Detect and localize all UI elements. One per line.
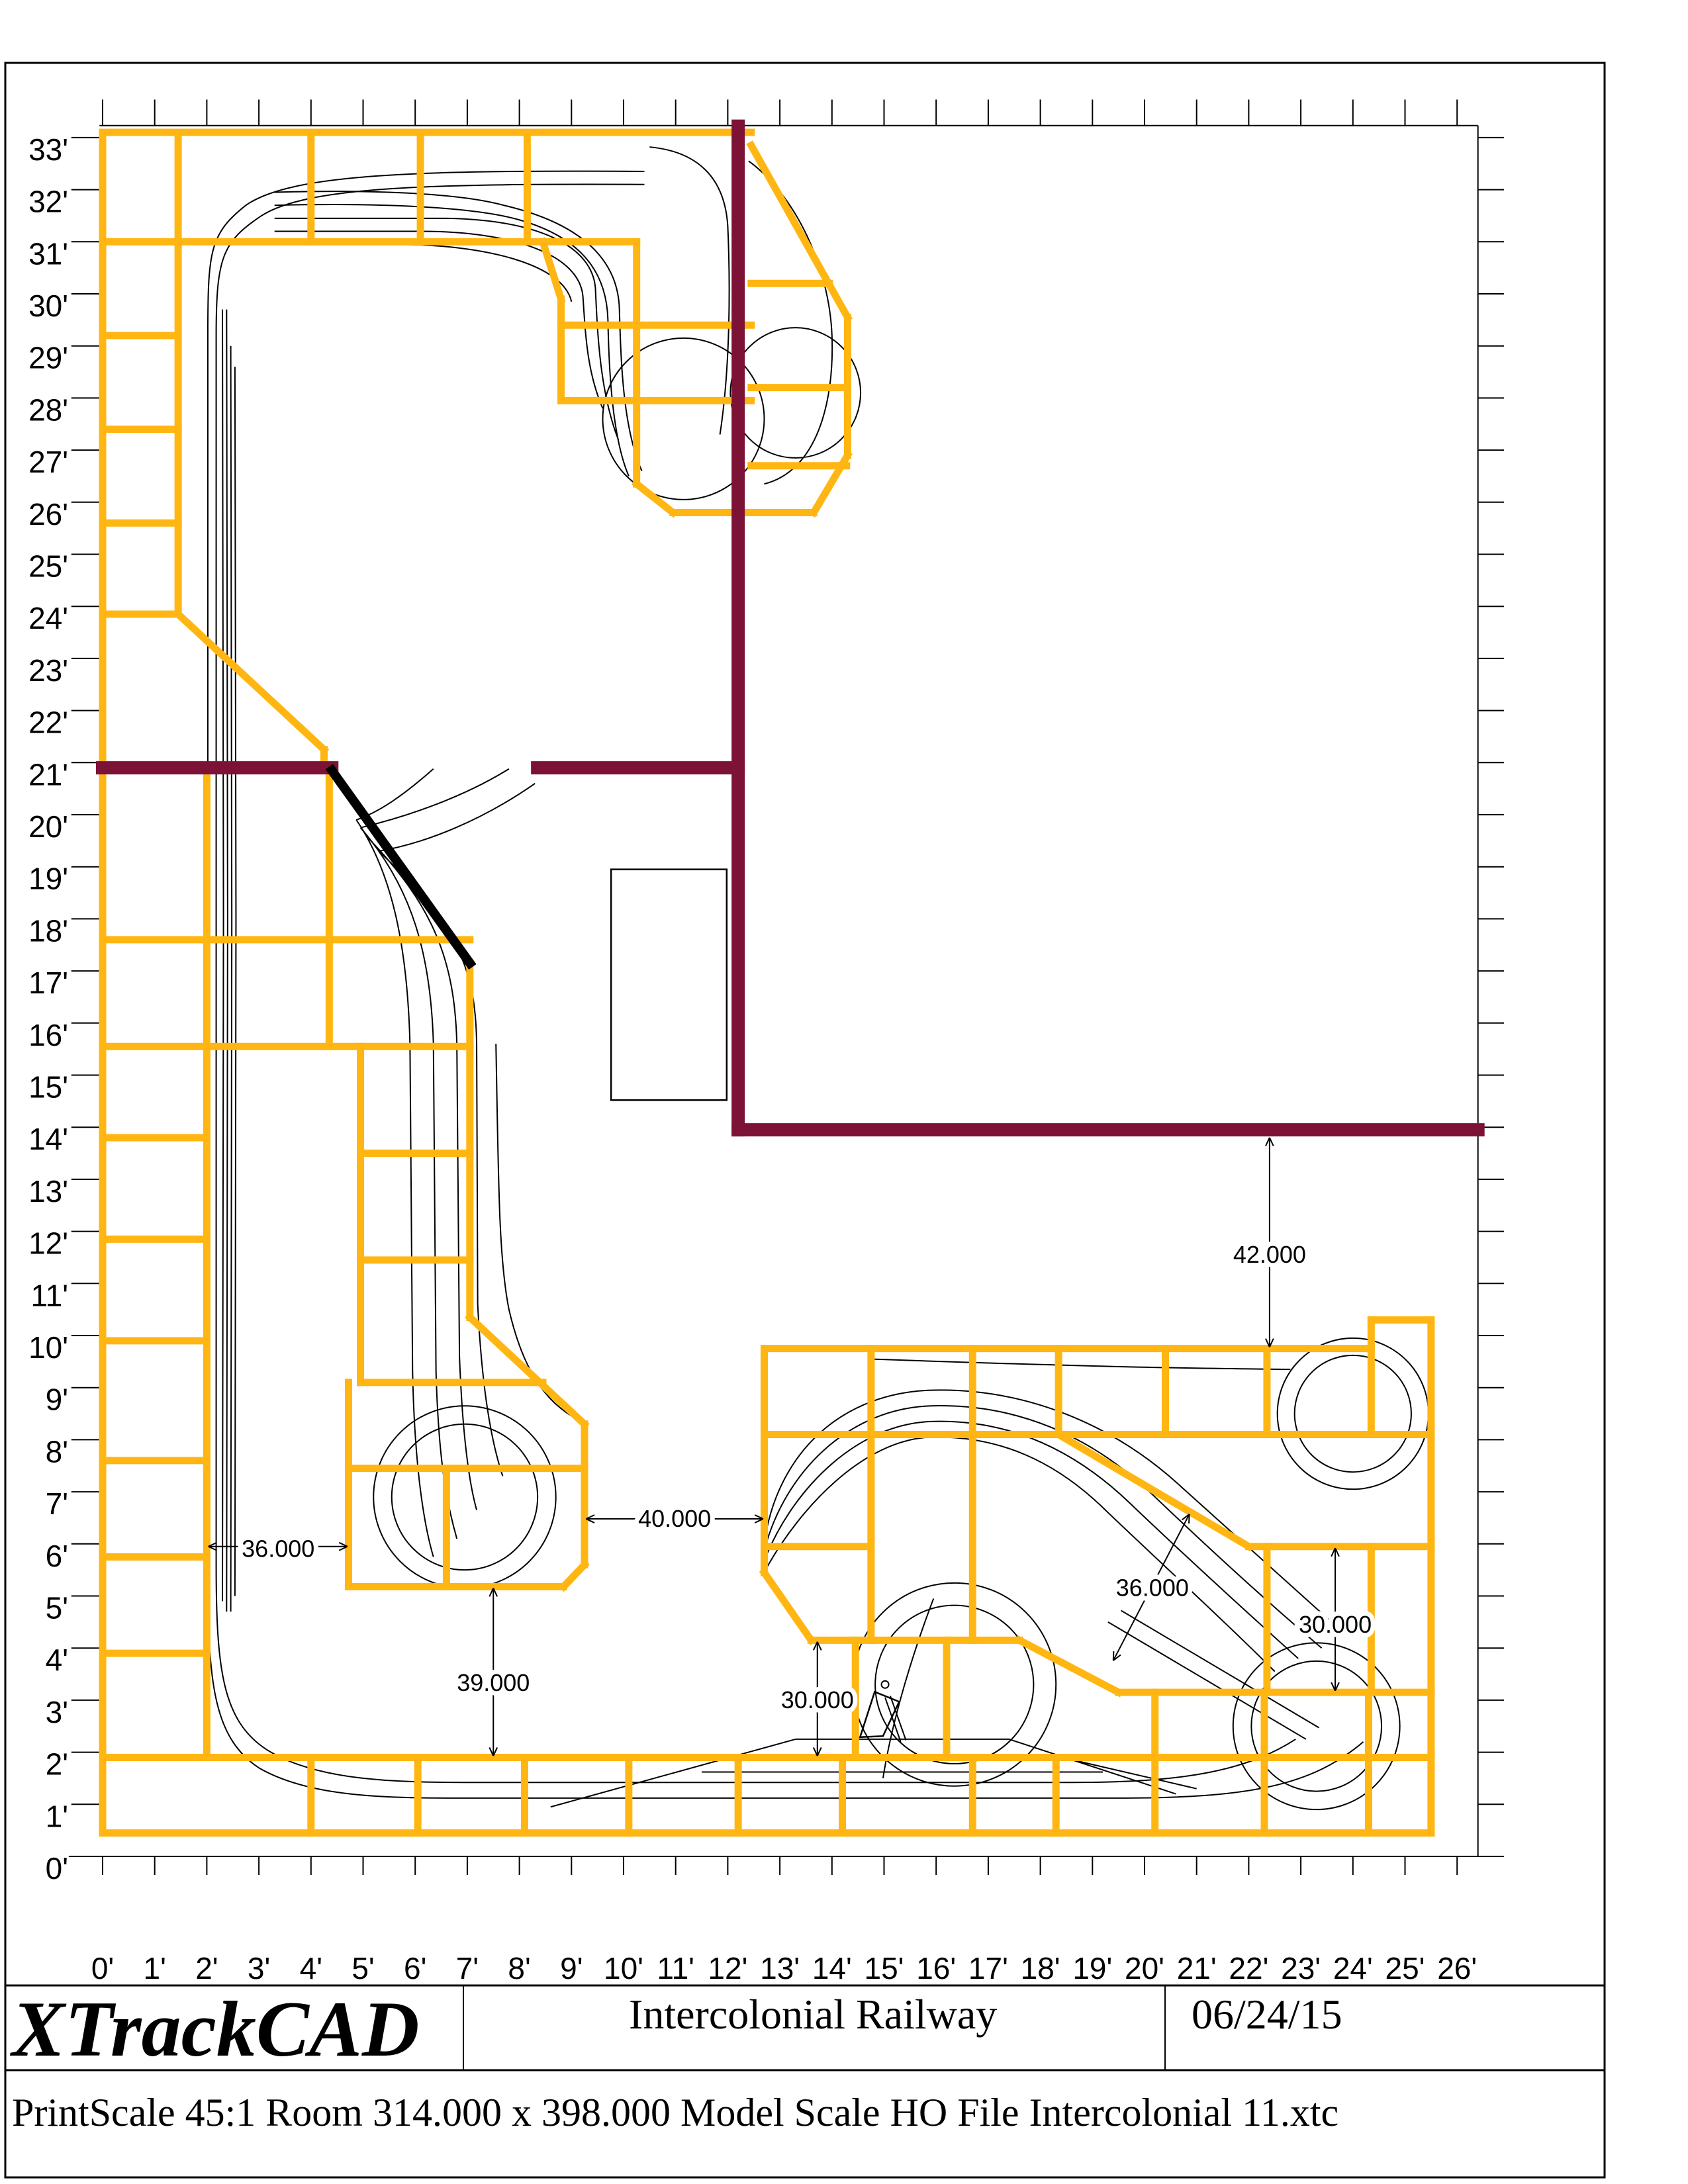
track-path bbox=[222, 310, 224, 1602]
track-path bbox=[356, 820, 433, 1557]
bottom-axis-label: 18' bbox=[1021, 1951, 1060, 1985]
dimension-label: 42.000 bbox=[1233, 1241, 1306, 1268]
left-axis-label: 30' bbox=[28, 289, 68, 323]
left-axis-label: 5' bbox=[46, 1591, 68, 1625]
dimension-arrowhead bbox=[1189, 1514, 1190, 1524]
bottom-axis-label: 4' bbox=[300, 1951, 322, 1985]
left-axis-label: 13' bbox=[28, 1174, 68, 1208]
bottom-axis-label: 24' bbox=[1333, 1951, 1373, 1985]
left-axis-label: 22' bbox=[28, 705, 68, 740]
bottom-axis-label: 3' bbox=[248, 1951, 270, 1985]
dimension-label: 30.000 bbox=[781, 1686, 854, 1713]
left-axis-label: 9' bbox=[46, 1383, 68, 1417]
left-axis-label: 4' bbox=[46, 1643, 68, 1677]
track-path bbox=[868, 1359, 1290, 1369]
left-axis-label: 19' bbox=[28, 862, 68, 896]
track-path bbox=[496, 1044, 587, 1424]
left-axis-label: 31' bbox=[28, 236, 68, 271]
benchwork-layer bbox=[103, 132, 1431, 1833]
benchwork-segment bbox=[764, 1572, 811, 1640]
app-logo: XTrackCAD bbox=[9, 1985, 420, 2073]
bottom-axis-label: 26' bbox=[1437, 1951, 1477, 1985]
track-path bbox=[275, 232, 603, 409]
track-loop-circle bbox=[392, 1424, 538, 1570]
track-path bbox=[767, 1437, 1274, 1671]
bottom-axis-label: 23' bbox=[1281, 1951, 1321, 1985]
track-path bbox=[356, 769, 433, 820]
track-path bbox=[235, 367, 236, 1596]
building-marker-circle bbox=[882, 1681, 889, 1688]
left-axis-label: 20' bbox=[28, 809, 68, 844]
track-loop-circle bbox=[1295, 1355, 1411, 1472]
track-path bbox=[361, 828, 457, 1539]
bottom-axis-label: 17' bbox=[968, 1951, 1008, 1985]
track-path bbox=[216, 184, 1296, 1782]
left-axis-label: 6' bbox=[46, 1539, 68, 1573]
bottom-axis-label: 20' bbox=[1125, 1951, 1164, 1985]
left-axis-label: 12' bbox=[28, 1226, 68, 1261]
track-loop-circle bbox=[1278, 1338, 1429, 1489]
bottom-axis-label: 5' bbox=[352, 1951, 374, 1985]
benchwork-segment bbox=[1058, 1435, 1248, 1547]
track-path bbox=[551, 1739, 796, 1807]
left-axis-label: 2' bbox=[46, 1747, 68, 1782]
track-path bbox=[275, 244, 572, 302]
dimension-arrowhead bbox=[1113, 1651, 1114, 1661]
page-border bbox=[5, 63, 1605, 2177]
bottom-axis-label: 6' bbox=[404, 1951, 426, 1985]
xtrackcad-print-page: 42.00040.00036.00039.00030.00036.00030.0… bbox=[0, 0, 1688, 2184]
left-axis-label: 18' bbox=[28, 913, 68, 948]
left-axis-label: 14' bbox=[28, 1122, 68, 1156]
left-axis-label: 27' bbox=[28, 445, 68, 479]
building-footprint bbox=[860, 1692, 899, 1737]
track-path bbox=[883, 1598, 933, 1778]
title-block: XTrackCAD Intercolonial Railway 06/24/15… bbox=[5, 1985, 1605, 2134]
dimension-label: 30.000 bbox=[1299, 1611, 1372, 1638]
bottom-axis-label: 2' bbox=[195, 1951, 218, 1985]
benchwork-segment bbox=[543, 242, 561, 299]
left-axis-label: 26' bbox=[28, 497, 68, 531]
track-path bbox=[767, 1406, 1321, 1648]
track-plan-canvas: 42.00040.00036.00039.00030.00036.00030.0… bbox=[0, 0, 1688, 2184]
dimension-label: 40.000 bbox=[638, 1505, 711, 1532]
bottom-axis-label: 22' bbox=[1229, 1951, 1268, 1985]
left-axis-label: 10' bbox=[28, 1330, 68, 1365]
dimensions-layer: 42.00040.00036.00039.00030.00036.00030.0… bbox=[209, 1138, 1372, 1756]
benchwork-segment bbox=[751, 146, 848, 318]
left-axis-label: 15' bbox=[28, 1070, 68, 1105]
bottom-axis-label: 10' bbox=[604, 1951, 643, 1985]
bottom-axis-label: 13' bbox=[760, 1951, 800, 1985]
left-axis-label: 24' bbox=[28, 601, 68, 635]
bottom-axis-label: 8' bbox=[508, 1951, 530, 1985]
track-path bbox=[226, 310, 228, 1612]
print-date: 06/24/15 bbox=[1192, 1991, 1342, 2038]
bottom-axis-label: 14' bbox=[812, 1951, 852, 1985]
track-path bbox=[767, 1390, 1337, 1627]
bottom-axis-label: 7' bbox=[456, 1951, 479, 1985]
bottom-axis-label: 15' bbox=[865, 1951, 904, 1985]
axis-labels-layer: 33'32'31'30'29'28'27'26'25'24'23'22'21'2… bbox=[28, 132, 1477, 1985]
benchwork-segment bbox=[178, 614, 324, 750]
dimension-label: 39.000 bbox=[457, 1669, 530, 1696]
left-axis-label: 11' bbox=[31, 1278, 69, 1312]
bottom-axis-label: 1' bbox=[144, 1951, 166, 1985]
track-path bbox=[208, 171, 1364, 1798]
left-axis-label: 8' bbox=[46, 1434, 68, 1469]
track-path bbox=[767, 1422, 1298, 1659]
track-lines-layer bbox=[208, 147, 1429, 1809]
room-walls-layer bbox=[103, 126, 1478, 1130]
dimension-label: 36.000 bbox=[242, 1535, 314, 1563]
layout-title: Intercolonial Railway bbox=[629, 1991, 997, 2038]
left-axis-label: 16' bbox=[28, 1018, 68, 1052]
left-axis-label: 28' bbox=[28, 392, 68, 427]
bottom-axis-label: 21' bbox=[1177, 1951, 1217, 1985]
layout-rectangle bbox=[611, 870, 727, 1101]
benchwork-segment bbox=[1019, 1640, 1119, 1692]
left-axis-label: 3' bbox=[46, 1695, 68, 1729]
bottom-axis-label: 25' bbox=[1385, 1951, 1425, 1985]
bottom-axis-label: 11' bbox=[657, 1951, 694, 1985]
left-axis-label: 0' bbox=[46, 1851, 68, 1886]
track-path bbox=[231, 346, 232, 1612]
bottom-axis-label: 19' bbox=[1072, 1951, 1112, 1985]
left-axis-label: 17' bbox=[28, 966, 68, 1000]
left-axis-label: 21' bbox=[28, 757, 68, 792]
structures-layer bbox=[611, 870, 906, 1742]
track-path bbox=[361, 769, 509, 828]
bottom-axis-label: 12' bbox=[708, 1951, 747, 1985]
bottom-axis-label: 16' bbox=[916, 1951, 956, 1985]
left-axis-label: 23' bbox=[28, 653, 68, 688]
track-path bbox=[649, 147, 729, 434]
track-path bbox=[275, 218, 618, 439]
left-axis-label: 32' bbox=[28, 185, 68, 219]
left-axis-label: 1' bbox=[46, 1799, 68, 1833]
track-geometry bbox=[208, 147, 1429, 1809]
left-axis-label: 7' bbox=[46, 1486, 68, 1521]
dimension-label: 36.000 bbox=[1116, 1574, 1189, 1602]
track-loop-circle bbox=[730, 328, 861, 458]
left-axis-label: 25' bbox=[28, 549, 68, 584]
bottom-axis-label: 0' bbox=[91, 1951, 114, 1985]
left-axis-label: 29' bbox=[28, 341, 68, 375]
print-info-line: PrintScale 45:1 Room 314.000 x 398.000 M… bbox=[12, 2091, 1338, 2134]
left-axis-label: 33' bbox=[28, 132, 68, 167]
bottom-axis-label: 9' bbox=[560, 1951, 583, 1985]
track-path bbox=[1121, 1611, 1319, 1728]
